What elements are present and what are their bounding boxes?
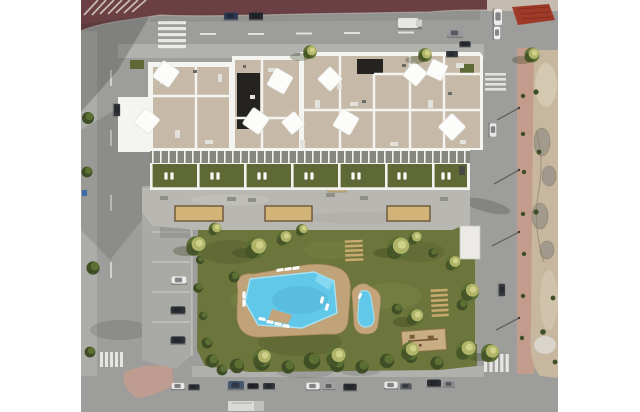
- ground-floor-gardens: [150, 164, 470, 188]
- parked-car: [249, 13, 264, 21]
- photo-area: [81, 0, 558, 412]
- dark-car-left-road: [113, 103, 120, 117]
- white-van: [492, 8, 502, 25]
- parking-strip-car: [170, 336, 186, 345]
- screenshot-aerial-photo: [0, 0, 640, 412]
- parked-car: [224, 13, 239, 21]
- communal-deck: [142, 183, 470, 230]
- box-truck-bottom: [228, 401, 264, 411]
- blue-bin: [82, 190, 87, 196]
- terrace-stairs: [459, 166, 465, 175]
- aerial-photo-canvas: [0, 0, 640, 412]
- white-car: [493, 26, 500, 40]
- pergola-row: [150, 150, 470, 165]
- right-white-margin: [558, 0, 640, 412]
- moving-car: [459, 41, 471, 48]
- white-car-right-road: [488, 123, 496, 137]
- left-white-margin: [0, 0, 81, 412]
- dark-roof-section-2: [357, 59, 383, 74]
- parking-strip-car: [170, 306, 186, 315]
- dark-car-right-road: [498, 283, 505, 297]
- sand-pergola-beds: [175, 206, 430, 221]
- apartment-building: [118, 52, 483, 190]
- box-truck-top: [398, 18, 422, 29]
- parking-strip-car: [171, 276, 187, 285]
- moving-car: [446, 51, 459, 58]
- corner-green-patch: [130, 60, 144, 69]
- garden-corner-structure: [460, 226, 480, 259]
- rocky-vacant-lot: [530, 50, 558, 378]
- moving-van: [447, 29, 463, 38]
- rubble-pile: [534, 336, 556, 354]
